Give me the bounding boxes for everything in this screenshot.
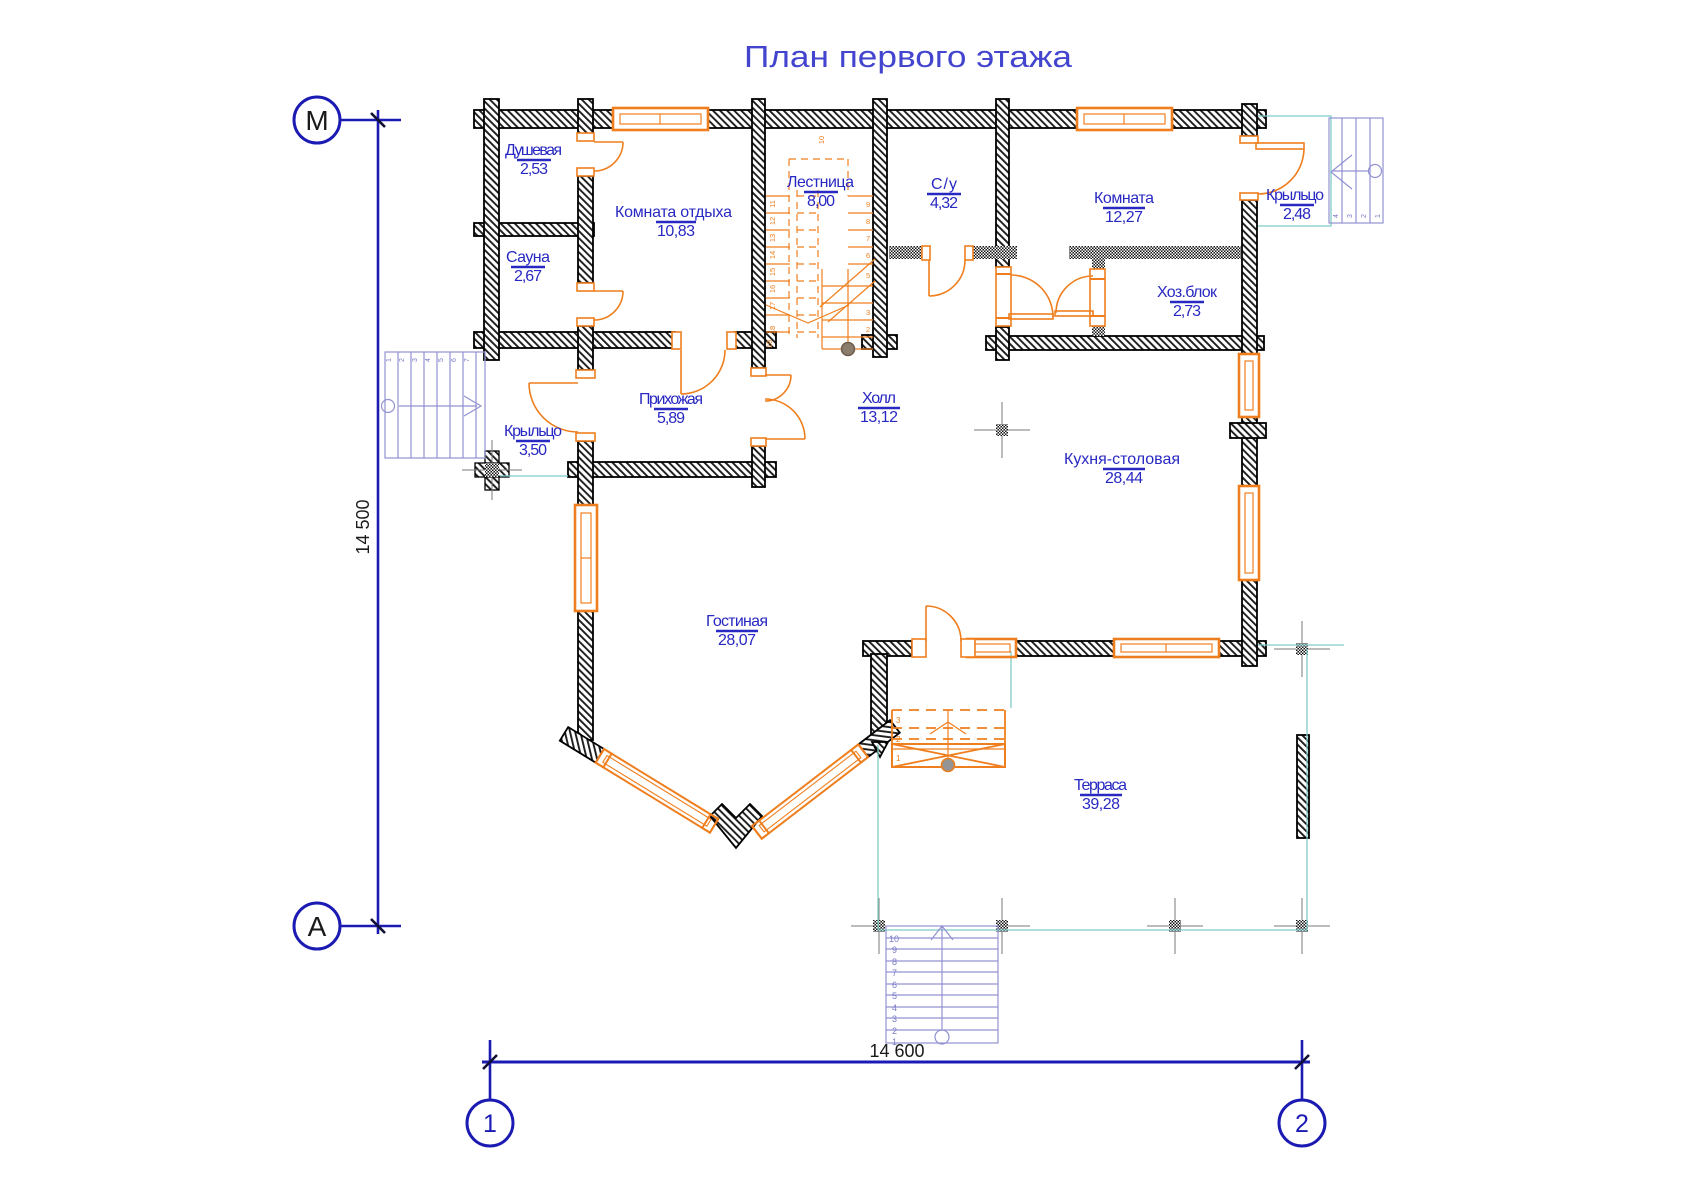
svg-text:С/у: С/у (931, 176, 957, 193)
svg-text:Хоз.блок: Хоз.блок (1157, 284, 1218, 301)
svg-text:Сауна: Сауна (506, 249, 550, 266)
svg-text:Душевая: Душевая (505, 142, 562, 159)
svg-text:3,50: 3,50 (519, 442, 547, 459)
svg-text:2: 2 (892, 1026, 897, 1036)
svg-text:2,67: 2,67 (514, 268, 542, 285)
svg-text:5: 5 (438, 358, 445, 362)
svg-text:1: 1 (1375, 214, 1382, 218)
svg-text:Прихожая: Прихожая (639, 391, 703, 408)
svg-text:18: 18 (768, 326, 777, 334)
svg-text:2: 2 (1295, 1110, 1309, 1138)
svg-text:5,89: 5,89 (657, 410, 685, 427)
svg-text:10,83: 10,83 (657, 223, 695, 240)
svg-text:3: 3 (1347, 214, 1354, 218)
svg-text:8: 8 (892, 957, 897, 967)
svg-text:Комната отдыха: Комната отдыха (615, 204, 732, 221)
svg-text:15: 15 (768, 268, 777, 276)
svg-text:16: 16 (768, 285, 777, 293)
svg-text:11: 11 (768, 200, 777, 208)
svg-text:1: 1 (896, 754, 901, 763)
svg-text:28,07: 28,07 (718, 632, 756, 649)
svg-text:7: 7 (464, 358, 471, 362)
svg-text:2,73: 2,73 (1173, 303, 1201, 320)
svg-text:7: 7 (866, 234, 870, 243)
svg-text:2: 2 (896, 735, 901, 744)
svg-text:Гостиная: Гостиная (706, 613, 768, 630)
svg-text:10: 10 (817, 136, 826, 144)
svg-text:Комната: Комната (1094, 190, 1154, 207)
svg-text:9: 9 (892, 945, 897, 955)
svg-text:1: 1 (483, 1110, 497, 1138)
svg-text:Терраса: Терраса (1074, 777, 1127, 794)
svg-text:3: 3 (896, 716, 901, 725)
svg-text:28,44: 28,44 (1105, 470, 1143, 487)
svg-text:Кухня-столовая: Кухня-столовая (1064, 451, 1180, 468)
svg-text:6: 6 (451, 358, 458, 362)
svg-text:14 600: 14 600 (869, 1041, 924, 1061)
svg-text:1: 1 (386, 358, 393, 362)
svg-text:5: 5 (892, 991, 897, 1001)
svg-text:3: 3 (866, 308, 870, 317)
svg-text:8,00: 8,00 (807, 193, 835, 210)
svg-text:2: 2 (399, 358, 406, 362)
svg-text:4,32: 4,32 (930, 195, 958, 212)
svg-text:Крыльцо: Крыльцо (504, 423, 562, 440)
svg-text:2,48: 2,48 (1283, 206, 1311, 223)
svg-text:2,53: 2,53 (520, 161, 548, 178)
svg-text:9: 9 (866, 200, 870, 209)
svg-text:12: 12 (768, 217, 777, 225)
svg-text:7: 7 (892, 968, 897, 978)
svg-text:6: 6 (892, 980, 897, 990)
svg-text:5: 5 (866, 271, 870, 280)
svg-text:Холл: Холл (862, 390, 896, 407)
svg-text:10: 10 (889, 934, 899, 944)
svg-text:2: 2 (866, 325, 870, 334)
svg-text:17: 17 (768, 302, 777, 310)
svg-text:План первого этажа: План первого этажа (744, 39, 1073, 74)
svg-text:4: 4 (1333, 214, 1340, 218)
svg-text:Лестница: Лестница (787, 174, 854, 191)
svg-text:3: 3 (892, 1014, 897, 1024)
svg-text:14: 14 (768, 251, 777, 259)
svg-text:13: 13 (768, 234, 777, 242)
svg-text:3: 3 (412, 358, 419, 362)
svg-text:8: 8 (866, 217, 870, 226)
svg-text:12,27: 12,27 (1105, 209, 1143, 226)
svg-text:Крыльцо: Крыльцо (1266, 187, 1324, 204)
svg-text:13,12: 13,12 (860, 409, 898, 426)
svg-text:М: М (305, 105, 328, 136)
svg-text:4: 4 (892, 1003, 897, 1013)
svg-text:6: 6 (866, 251, 870, 260)
svg-text:А: А (308, 911, 327, 942)
svg-text:39,28: 39,28 (1082, 796, 1120, 813)
svg-text:2: 2 (1361, 214, 1368, 218)
svg-text:19: 19 (765, 340, 774, 348)
svg-text:14 500: 14 500 (353, 499, 373, 554)
svg-text:4: 4 (425, 358, 432, 362)
